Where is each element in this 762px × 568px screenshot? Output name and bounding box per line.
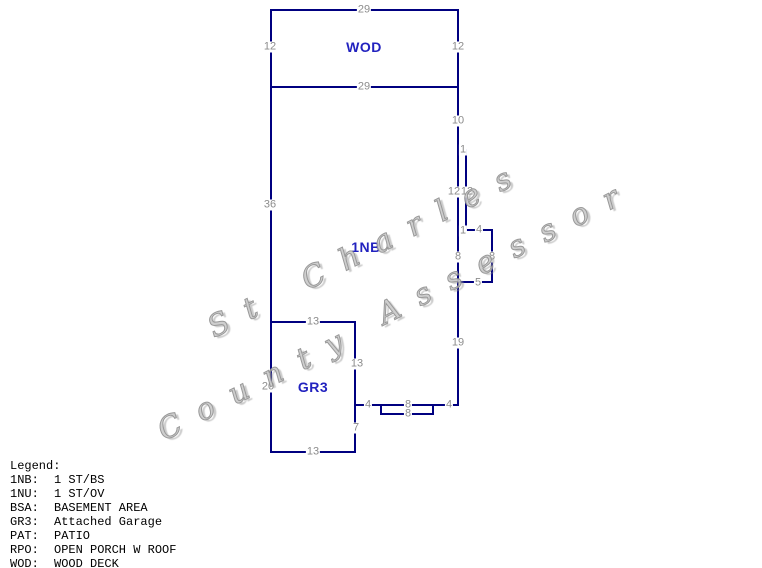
legend-code: 1NB: bbox=[10, 473, 54, 487]
dimension-label: 5 bbox=[474, 278, 482, 289]
dimension-label: 13 bbox=[306, 447, 320, 458]
dimension-label: 4 bbox=[445, 400, 453, 411]
legend-desc: BASEMENT AREA bbox=[54, 501, 148, 515]
dimension-label: 8 bbox=[404, 409, 412, 420]
legend-row: GR3:Attached Garage bbox=[10, 515, 176, 529]
dimension-label: 1 bbox=[459, 226, 467, 237]
dimension-label: 29 bbox=[357, 5, 371, 16]
legend-desc: PATIO bbox=[54, 529, 90, 543]
dimension-label: 12 bbox=[451, 42, 465, 53]
legend-row: RPO:OPEN PORCH W ROOF bbox=[10, 543, 176, 557]
assessor-sketch-canvas: St CharlesCountyAssessor 291212291011212… bbox=[0, 0, 762, 568]
area-label: GR3 bbox=[298, 379, 328, 395]
legend: Legend: 1NB:1 ST/BS1NU:1 ST/OVBSA:BASEME… bbox=[10, 459, 176, 568]
dimension-label: 7 bbox=[352, 423, 360, 434]
dimension-label: 12 bbox=[263, 42, 277, 53]
dimension-label: 10 bbox=[451, 116, 465, 127]
legend-code: GR3: bbox=[10, 515, 54, 529]
dimension-label: 19 bbox=[451, 338, 465, 349]
legend-row: 1NU:1 ST/OV bbox=[10, 487, 176, 501]
legend-desc: Attached Garage bbox=[54, 515, 162, 529]
legend-code: BSA: bbox=[10, 501, 54, 515]
legend-row: BSA:BASEMENT AREA bbox=[10, 501, 176, 515]
legend-desc: 1 ST/BS bbox=[54, 473, 104, 487]
legend-desc: WOOD DECK bbox=[54, 557, 119, 568]
area-label: WOD bbox=[346, 39, 382, 55]
dimension-label: 36 bbox=[263, 200, 277, 211]
legend-desc: OPEN PORCH W ROOF bbox=[54, 543, 176, 557]
legend-code: RPO: bbox=[10, 543, 54, 557]
wall-segment bbox=[457, 86, 459, 231]
dimension-label: 12 bbox=[460, 187, 474, 198]
legend-code: PAT: bbox=[10, 529, 54, 543]
legend-row: 1NB:1 ST/BS bbox=[10, 473, 176, 487]
dimension-label: 8 bbox=[488, 252, 496, 263]
legend-code: WOD: bbox=[10, 557, 54, 568]
legend-row: PAT:PATIO bbox=[10, 529, 176, 543]
dimension-label: 4 bbox=[364, 400, 372, 411]
legend-row: WOD:WOOD DECK bbox=[10, 557, 176, 568]
dimension-label: 20 bbox=[261, 382, 275, 393]
legend-title: Legend: bbox=[10, 459, 176, 473]
legend-code: 1NU: bbox=[10, 487, 54, 501]
dimension-label: 29 bbox=[357, 82, 371, 93]
dimension-label: 4 bbox=[475, 225, 483, 236]
legend-rows: 1NB:1 ST/BS1NU:1 ST/OVBSA:BASEMENT AREAG… bbox=[10, 473, 176, 568]
dimension-label: 13 bbox=[350, 359, 364, 370]
legend-desc: 1 ST/OV bbox=[54, 487, 104, 501]
dimension-label: 13 bbox=[306, 317, 320, 328]
dimension-label: 8 bbox=[454, 252, 462, 263]
area-label: 1NB bbox=[351, 239, 381, 255]
dimension-label: 1 bbox=[459, 145, 467, 156]
